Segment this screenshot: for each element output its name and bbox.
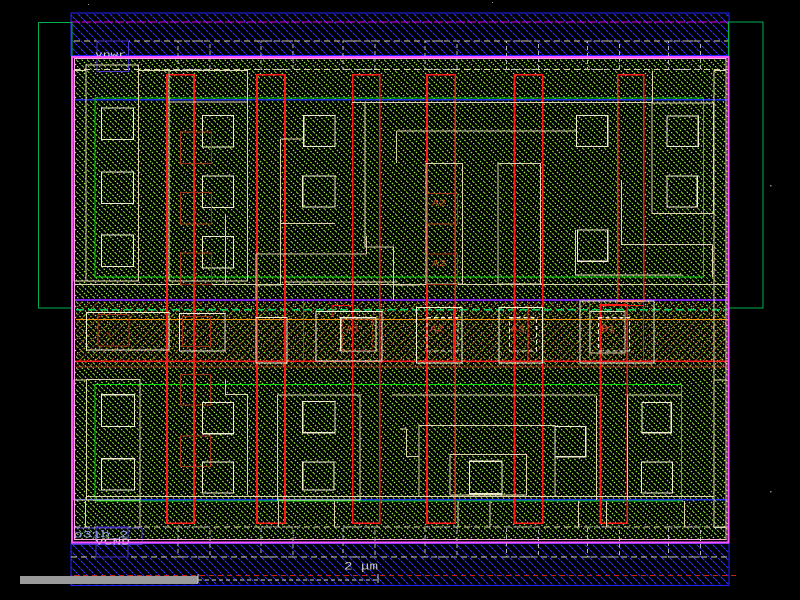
svg-text:A2: A2 [432, 199, 446, 209]
svg-text:x: x [192, 268, 197, 278]
svg-text:A2: A2 [430, 325, 444, 335]
svg-text:x: x [193, 330, 198, 340]
svg-text:x: x [192, 389, 197, 399]
svg-text:B1: B1 [601, 325, 615, 335]
svg-text:x: x [192, 147, 197, 157]
svg-text:x: x [192, 451, 197, 461]
svg-text:A1: A1 [346, 325, 360, 335]
svg-text:A3: A3 [511, 325, 525, 335]
svg-text:2 μm: 2 μm [344, 562, 379, 574]
svg-text:x: x [106, 330, 111, 340]
svg-text:A2: A2 [432, 259, 446, 269]
svg-text:x: x [192, 208, 197, 218]
